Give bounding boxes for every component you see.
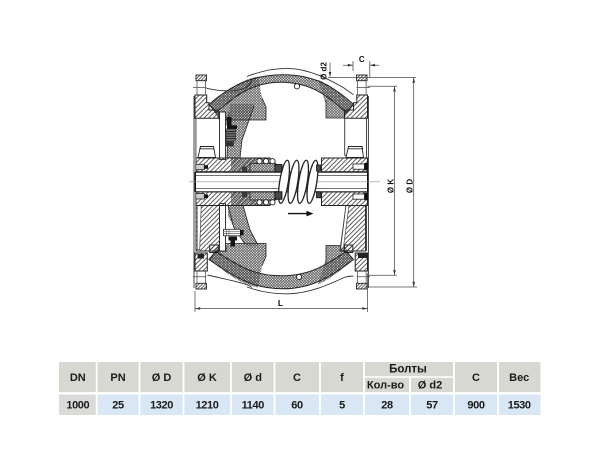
svg-text:Ø d: Ø d [244,372,262,384]
svg-text:900: 900 [467,400,484,412]
svg-text:Болты: Болты [389,364,427,376]
svg-text:25: 25 [112,400,124,412]
svg-text:DN: DN [70,372,86,384]
svg-text:1320: 1320 [150,400,173,412]
svg-text:Вес: Вес [509,372,529,384]
svg-text:1000: 1000 [66,400,89,412]
svg-text:Ø D: Ø D [152,372,172,384]
svg-text:Ø K: Ø K [197,372,217,384]
svg-text:C: C [472,372,480,384]
svg-text:60: 60 [291,400,303,412]
svg-text:Ø K: Ø K [386,179,395,193]
svg-text:Ø d2: Ø d2 [319,62,328,80]
svg-text:Ø d2: Ø d2 [418,380,442,392]
svg-text:28: 28 [381,400,393,412]
svg-text:f: f [340,372,344,384]
svg-text:1530: 1530 [508,400,531,412]
svg-text:1140: 1140 [242,400,265,412]
svg-text:1210: 1210 [196,400,219,412]
svg-text:5: 5 [339,400,345,412]
svg-text:C: C [293,372,301,384]
svg-text:C: C [359,55,365,64]
svg-text:Ø D: Ø D [406,179,415,193]
svg-text:L: L [278,298,283,308]
svg-text:Кол-во: Кол-во [367,380,404,392]
svg-text:57: 57 [426,400,438,412]
svg-text:PN: PN [110,372,125,384]
